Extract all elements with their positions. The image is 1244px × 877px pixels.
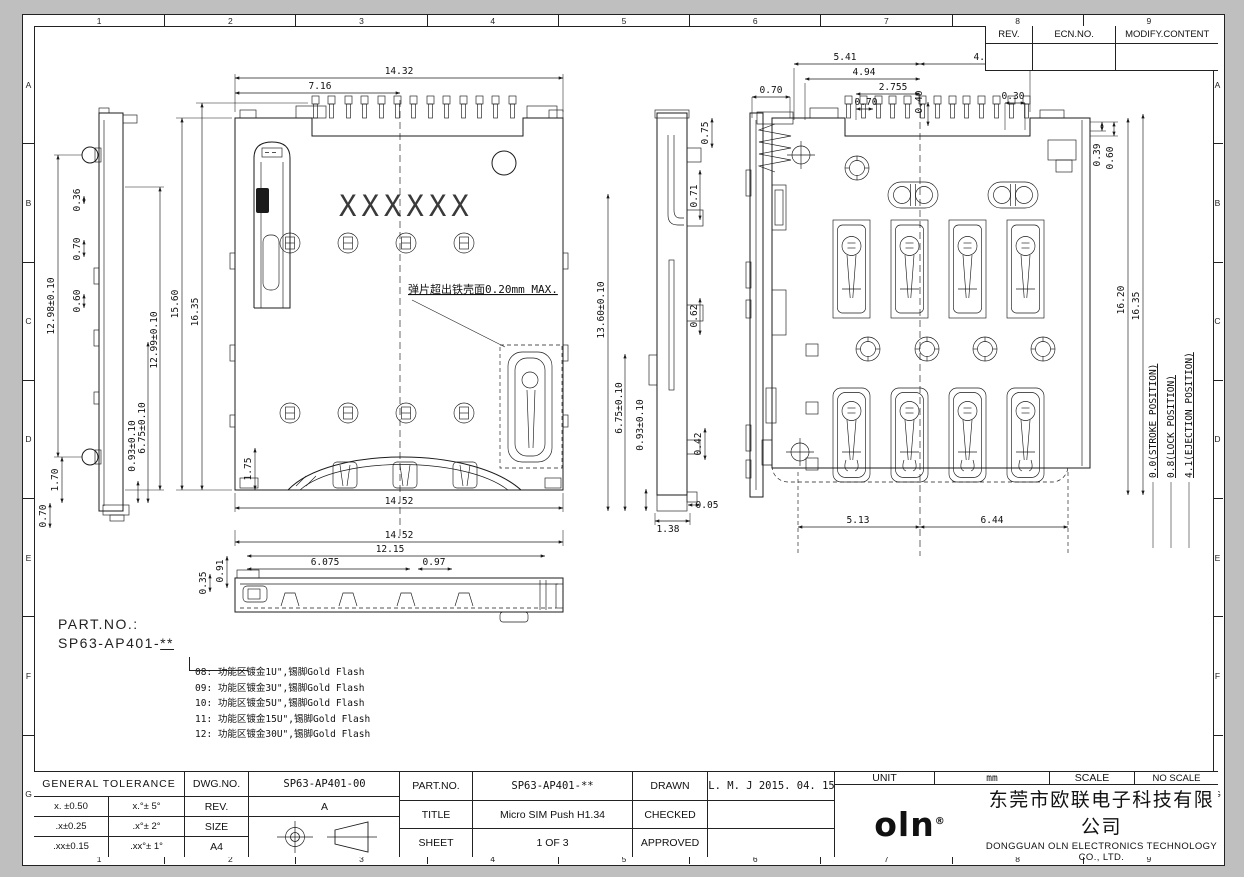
unit-value: mm: [935, 772, 1050, 784]
sheet-value: 1 OF 3: [473, 829, 633, 857]
dim-label: 0.70: [760, 85, 783, 96]
revision-table: REV.ECN.NO.MODIFY.CONTENT: [985, 26, 1218, 71]
tolerance-angular-2: .x°± 2°: [109, 817, 185, 837]
bottom-profile-view: 14.52 12.15 6.075 0.97 0.91 0.35: [198, 530, 563, 622]
dim-label: 2.755: [879, 82, 908, 93]
company-name-en: DONGGUAN OLN ELECTRONICS TECHNOLOGY CO.,…: [985, 841, 1218, 863]
detect-switch-zone: [500, 345, 562, 468]
sheet-label: SHEET: [400, 829, 473, 857]
company-name-cn: 东莞市欧联电子科技有限公司: [985, 785, 1218, 839]
dim-label: 6.44: [981, 515, 1004, 526]
title-label: TITLE: [400, 801, 473, 829]
dim-label: 16.35: [190, 298, 201, 327]
part-number-prefix: SP63-AP401-: [58, 635, 160, 651]
company-names: 东莞市欧联电子科技有限公司 DONGGUAN OLN ELECTRONICS T…: [985, 785, 1218, 863]
dim-label: 0.93±0.10: [635, 399, 646, 451]
unit-label: UNIT: [835, 772, 935, 784]
title-block: GENERAL TOLERANCE DWG.NO. SP63-AP401-00 …: [34, 771, 1218, 857]
ring-row: [856, 337, 1055, 361]
dim-label: 12.99±0.10: [149, 311, 160, 368]
dim-label: 0.60: [1105, 146, 1116, 169]
tolerance-angular-1: x.°± 5°: [109, 797, 185, 817]
dwg-no-value: SP63-AP401-00: [249, 772, 400, 797]
projection-symbol: [249, 817, 400, 857]
revision-table-header: REV.ECN.NO.MODIFY.CONTENT: [986, 26, 1218, 44]
dim-label: 5.13: [847, 515, 870, 526]
dim-label: 0.05: [696, 500, 719, 511]
plating-option: 10: 功能区镀金5U",锡脚Gold Flash: [195, 696, 370, 712]
eject-spring: [757, 112, 793, 172]
stroke-position-label: 0.0(STROKE POSITION): [1148, 364, 1159, 478]
dim-label: 6.075: [311, 557, 340, 568]
company-logo: oln®: [835, 805, 985, 844]
dim-label: 0.70: [72, 237, 83, 260]
tolerance-linear-1: x. ±0.50: [34, 797, 109, 817]
size-label: SIZE: [185, 817, 249, 837]
drawn-value: L. M. J 2015. 04. 15: [708, 772, 835, 801]
dim-label: 12.15: [376, 544, 405, 555]
tolerance-linear-3: .xx±0.15: [34, 837, 109, 857]
mounting-holes: [280, 233, 474, 423]
dim-label: 15.60: [170, 289, 181, 318]
tolerance-linear-2: .x±0.25: [34, 817, 109, 837]
dim-label: 12.98±0.10: [46, 277, 57, 334]
drawn-label: DRAWN: [633, 772, 708, 801]
plating-options-list: 08: 功能区镀金1U",锡脚Gold Flash09: 功能区镀金3U",锡脚…: [195, 665, 370, 743]
revision-cell: [1116, 44, 1218, 70]
title-block-tolerance-section: GENERAL TOLERANCE DWG.NO. SP63-AP401-00 …: [34, 772, 400, 857]
dim-label: 4.94: [853, 67, 876, 78]
revision-table-empty-row: [986, 44, 1218, 70]
title-block-info-section: PART.NO. SP63-AP401-** DRAWN L. M. J 201…: [400, 772, 835, 857]
revision-cell: [1033, 44, 1117, 70]
spring-note: 弹片超出铁壳面0.20mm MAX.: [408, 282, 558, 296]
title-value: Micro SIM Push H1.34: [473, 801, 633, 829]
plating-option: 09: 功能区镀金3U",锡脚Gold Flash: [195, 681, 370, 697]
left-side-view: 12.98±0.10 0.36 0.70 0.60 12.99±0.10 0.9…: [38, 108, 164, 528]
leader-line: [412, 300, 505, 347]
part-no-label: PART.NO.: [400, 772, 473, 801]
dim-label: 0.71: [689, 184, 700, 207]
dim-label: 6.75±0.10: [137, 402, 148, 454]
detect-spring: [508, 352, 552, 462]
plating-option: 11: 功能区镀金15U",锡脚Gold Flash: [195, 712, 370, 728]
dim-label: 1.75: [243, 458, 254, 481]
revision-header-cell: REV.: [986, 26, 1033, 44]
dim-label: 6.75±0.10: [614, 382, 625, 434]
approved-value: [708, 829, 835, 857]
third-angle-projection-icon: [265, 818, 385, 856]
bottom-view: 5.41 4.70 4.94 2.755 0.70 0.40 0.30 0.70…: [752, 52, 1195, 556]
front-view: XXXXXX: [170, 66, 568, 540]
rev-label: REV.: [185, 797, 249, 817]
general-tolerance-header: GENERAL TOLERANCE: [34, 772, 185, 797]
registered-mark-icon: ®: [935, 816, 946, 827]
drawing-canvas: 12.98±0.10 0.36 0.70 0.60 12.99±0.10 0.9…: [0, 0, 1244, 877]
pivot-mark: [786, 438, 814, 466]
revision-cell: [986, 44, 1033, 70]
dwg-no-label: DWG.NO.: [185, 772, 249, 797]
dim-label: 7.16: [309, 81, 332, 92]
edge-strip-view: [746, 113, 763, 497]
pivot-mark: [787, 141, 815, 169]
checked-label: CHECKED: [633, 801, 708, 829]
logo-text: oln: [874, 805, 934, 844]
size-value: A4: [185, 837, 249, 857]
contact-slots-top: [833, 220, 1044, 318]
tolerance-angular-3: .xx°± 1°: [109, 837, 185, 857]
dim-label: 0.36: [72, 188, 83, 211]
dim-label: 0.30: [1002, 91, 1025, 102]
dim-label: 14.52: [385, 530, 414, 541]
revision-header-cell: MODIFY.CONTENT: [1116, 26, 1218, 44]
dim-label: 0.40: [914, 90, 925, 113]
engineering-drawing-sheet: 123456789 123456789 ABCDEFG ABCDEFG: [0, 0, 1244, 877]
dim-label: 13.60±0.10: [596, 281, 607, 338]
dim-label: 0.62: [689, 305, 700, 328]
scale-label: SCALE: [1050, 772, 1135, 784]
dim-label: 0.70: [38, 504, 49, 527]
part-number-block: PART.NO.: SP63-AP401-** 08: 功能区镀金1U",锡脚G…: [58, 616, 370, 743]
part-no-value: SP63-AP401-**: [473, 772, 633, 801]
dim-label: 0.42: [693, 433, 704, 456]
dim-label: 0.91: [215, 559, 226, 582]
dim-label: 16.20: [1116, 285, 1127, 314]
dim-label: 14.32: [385, 66, 414, 77]
marking-text: XXXXXX: [339, 189, 474, 223]
approved-label: APPROVED: [633, 829, 708, 857]
dim-label: 5.41: [834, 52, 857, 63]
checked-value: [708, 801, 835, 829]
dim-label: 0.75: [700, 122, 711, 145]
dim-label: 0.97: [423, 557, 446, 568]
push-rod: [254, 142, 290, 308]
rev-value: A: [249, 797, 400, 817]
dim-label: 14.52: [385, 496, 414, 507]
section-side-view: 0.75 0.71 0.62 0.42 13.60±0.10 6.75±0.10…: [596, 110, 718, 535]
revision-header-cell: ECN.NO.: [1033, 26, 1117, 44]
dim-label: 0.39: [1092, 143, 1103, 166]
dim-label: 1.38: [657, 524, 680, 535]
part-number-suffix: **: [160, 635, 174, 651]
scale-value: NO SCALE: [1135, 772, 1218, 784]
title-block-company-section: UNIT mm SCALE NO SCALE oln® 东莞市欧联电子科技有限公…: [835, 772, 1218, 857]
part-number-value: SP63-AP401-**: [58, 635, 370, 651]
leader-elbow: [189, 657, 248, 671]
plating-option: 12: 功能区镀金30U",锡脚Gold Flash: [195, 727, 370, 743]
part-number-label: PART.NO.:: [58, 616, 370, 632]
dim-label: 0.60: [72, 289, 83, 312]
ejection-position-label: 4.1(EJECTION POSITION): [1184, 352, 1195, 478]
dim-label: 16.35: [1131, 292, 1142, 321]
dim-label: 1.70: [50, 468, 61, 491]
lock-position-label: 0.8(LOCK POSITION): [1166, 375, 1177, 478]
dim-label: 0.35: [198, 572, 209, 595]
dim-label: 0.70: [855, 97, 878, 108]
pin-row: [312, 96, 516, 118]
